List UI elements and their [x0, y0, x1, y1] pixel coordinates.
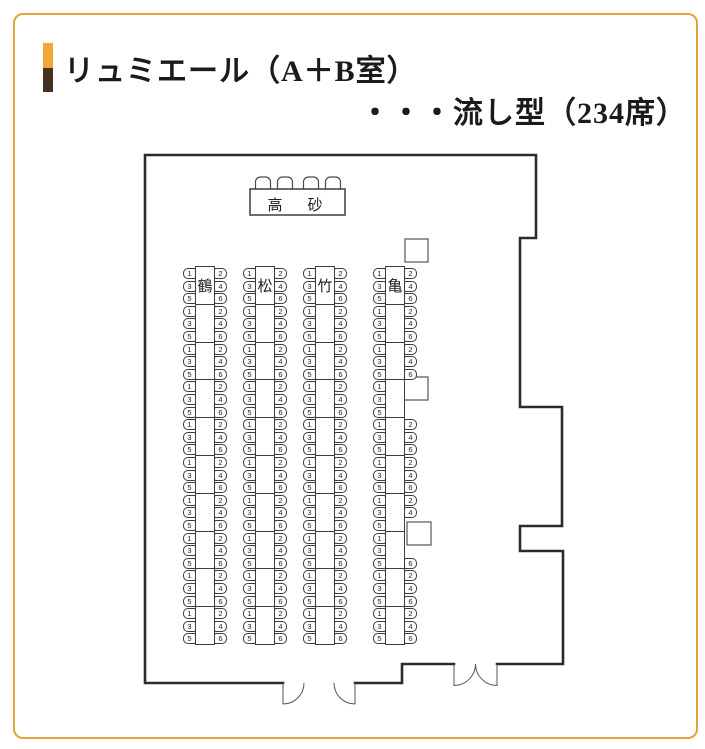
seat: 3: [183, 470, 196, 481]
table-segment: [315, 455, 335, 494]
seat: 5: [183, 407, 196, 418]
seat: 1: [303, 381, 316, 392]
seat: 5: [243, 407, 256, 418]
seat: 5: [183, 482, 196, 493]
seat: 4: [334, 281, 347, 292]
seat: 2: [274, 344, 287, 355]
seat: 2: [334, 457, 347, 468]
seat: 2: [404, 419, 417, 430]
seat: 6: [214, 633, 227, 644]
table-segment: [255, 568, 275, 607]
seat: 3: [373, 470, 386, 481]
seat: 3: [183, 318, 196, 329]
seat: 4: [404, 583, 417, 594]
table-segment: [385, 342, 405, 381]
table-segment: [315, 342, 335, 381]
table-segment: [255, 304, 275, 343]
seat: 3: [303, 583, 316, 594]
seat: 5: [373, 444, 386, 455]
table-segment: [255, 379, 275, 418]
seat: 1: [183, 570, 196, 581]
table-segment: [385, 606, 405, 645]
seat: 4: [404, 621, 417, 632]
seat: 5: [303, 331, 316, 342]
seat: 2: [274, 419, 287, 430]
seat: 6: [214, 293, 227, 304]
seat: 3: [303, 470, 316, 481]
seat: 3: [243, 470, 256, 481]
seat: 3: [373, 318, 386, 329]
seat: 6: [214, 407, 227, 418]
seat: 4: [214, 318, 227, 329]
seat: 6: [214, 558, 227, 569]
seat: 6: [404, 369, 417, 380]
seat: 4: [214, 281, 227, 292]
table-segment: [255, 531, 275, 570]
seat: 5: [373, 558, 386, 569]
seat: 3: [303, 432, 316, 443]
seat: 2: [274, 306, 287, 317]
table-label: 松: [255, 272, 275, 298]
seat: 3: [183, 432, 196, 443]
seat: 6: [334, 444, 347, 455]
seat: 4: [214, 545, 227, 556]
seat: 2: [334, 570, 347, 581]
seat: 5: [183, 369, 196, 380]
seat: 5: [183, 633, 196, 644]
seat: 2: [404, 306, 417, 317]
seat: 4: [334, 432, 347, 443]
seat: 6: [334, 558, 347, 569]
seat: 2: [274, 457, 287, 468]
seat: 1: [303, 306, 316, 317]
seat: 1: [183, 457, 196, 468]
table-segment: [385, 379, 405, 418]
seat: 6: [334, 369, 347, 380]
seat: 4: [334, 318, 347, 329]
seat: 3: [183, 507, 196, 518]
table-segment: [255, 493, 275, 532]
room-outline-svg: [0, 0, 705, 749]
seat: 4: [334, 470, 347, 481]
seat: 3: [243, 621, 256, 632]
door-right-right-leaf: [476, 664, 498, 686]
table-segment: [255, 342, 275, 381]
seat: 3: [303, 318, 316, 329]
table-segment: [195, 606, 215, 645]
seat: 5: [373, 407, 386, 418]
seat: 3: [243, 318, 256, 329]
pillar: [404, 377, 428, 400]
seat: 1: [243, 381, 256, 392]
seat: 6: [404, 444, 417, 455]
pillar: [407, 522, 431, 545]
seat: 4: [334, 356, 347, 367]
seat: 5: [303, 633, 316, 644]
door-right-left-leaf: [454, 664, 476, 686]
seat: 1: [243, 344, 256, 355]
seat: 2: [214, 457, 227, 468]
seat: 3: [303, 545, 316, 556]
table-segment: [195, 304, 215, 343]
seat: 3: [183, 356, 196, 367]
seat: 5: [373, 633, 386, 644]
table-segment: [255, 417, 275, 456]
seat: 2: [334, 533, 347, 544]
seat: 2: [334, 608, 347, 619]
pillar: [405, 239, 428, 262]
seat: 2: [404, 608, 417, 619]
seat: 1: [243, 570, 256, 581]
seat: 1: [183, 495, 196, 506]
seat: 6: [274, 331, 287, 342]
seat: 2: [404, 344, 417, 355]
seat: 2: [214, 533, 227, 544]
seat: 3: [303, 507, 316, 518]
table-segment: [385, 455, 405, 494]
seat: 2: [214, 570, 227, 581]
seat: 3: [183, 621, 196, 632]
seat: 3: [303, 356, 316, 367]
seat: 4: [214, 507, 227, 518]
seat: 6: [274, 407, 287, 418]
seat: 5: [243, 558, 256, 569]
seat: 2: [214, 608, 227, 619]
seat: 4: [274, 394, 287, 405]
seat: 3: [243, 545, 256, 556]
table-label: 亀: [385, 272, 405, 298]
seat: 6: [334, 482, 347, 493]
seat: 6: [404, 482, 417, 493]
seat: 6: [274, 369, 287, 380]
seat: 5: [303, 520, 316, 531]
seat: 4: [214, 394, 227, 405]
seat: 1: [303, 570, 316, 581]
door-center-right: [334, 683, 355, 704]
door-center-left: [283, 683, 304, 704]
seat: 6: [334, 596, 347, 607]
seat: 3: [373, 507, 386, 518]
seat: 1: [243, 495, 256, 506]
seat: 1: [373, 608, 386, 619]
seat: 4: [404, 281, 417, 292]
seat: 3: [243, 432, 256, 443]
seat: 1: [373, 457, 386, 468]
seat: 3: [373, 394, 386, 405]
seat: 2: [214, 495, 227, 506]
seat: 5: [373, 369, 386, 380]
seating-chart-page: リュミエール（A＋B室） ・・・流し型（234席） 高 砂 12345: [0, 0, 705, 749]
seat: 1: [243, 419, 256, 430]
seat: 4: [274, 621, 287, 632]
seat: 2: [274, 268, 287, 279]
seat: 5: [373, 331, 386, 342]
seat: 6: [274, 520, 287, 531]
seat: 3: [243, 583, 256, 594]
seat: 5: [183, 331, 196, 342]
seat: 2: [214, 306, 227, 317]
stage-label: 高 砂: [250, 194, 345, 215]
table-segment: [315, 304, 335, 343]
seat: 5: [243, 331, 256, 342]
seat: 6: [404, 596, 417, 607]
table-segment: [315, 531, 335, 570]
seat: 4: [274, 470, 287, 481]
seat: 2: [274, 495, 287, 506]
seat: 1: [373, 306, 386, 317]
seat: 4: [404, 356, 417, 367]
seat: 1: [373, 344, 386, 355]
seat: 2: [404, 457, 417, 468]
seat: 6: [214, 444, 227, 455]
seat: 6: [214, 482, 227, 493]
table-segment: [255, 606, 275, 645]
table-segment: [195, 493, 215, 532]
seat: 6: [274, 293, 287, 304]
table-segment: [195, 342, 215, 381]
seat: 6: [334, 407, 347, 418]
seat: 1: [303, 608, 316, 619]
seat: 4: [334, 621, 347, 632]
seat: 4: [274, 507, 287, 518]
seat: 4: [274, 318, 287, 329]
seat: 4: [274, 583, 287, 594]
seat: 6: [404, 633, 417, 644]
seat: 3: [373, 621, 386, 632]
seat: 5: [183, 444, 196, 455]
seat: 5: [183, 520, 196, 531]
table-segment: [195, 568, 215, 607]
seat: 3: [183, 583, 196, 594]
seat: 4: [274, 545, 287, 556]
table-segment: [315, 417, 335, 456]
seat: 4: [214, 356, 227, 367]
seat: 1: [243, 306, 256, 317]
table-segment: [255, 455, 275, 494]
seat: 3: [243, 394, 256, 405]
seat: 5: [303, 482, 316, 493]
seat: 5: [243, 520, 256, 531]
seat: 5: [303, 558, 316, 569]
seat: 1: [183, 533, 196, 544]
seat: 1: [243, 457, 256, 468]
seat: 6: [404, 293, 417, 304]
seat: 1: [303, 495, 316, 506]
stage-chairs: [256, 177, 341, 190]
seat: 6: [214, 520, 227, 531]
seat: 2: [404, 268, 417, 279]
seat: 2: [274, 381, 287, 392]
seat: 2: [404, 570, 417, 581]
seat: 1: [373, 419, 386, 430]
table-segment: [385, 304, 405, 343]
seat: 5: [243, 633, 256, 644]
table-segment: [315, 568, 335, 607]
seat: 4: [274, 281, 287, 292]
table-segment: [315, 379, 335, 418]
seat: 4: [214, 621, 227, 632]
seat: 3: [243, 356, 256, 367]
seat: 4: [214, 583, 227, 594]
seat: 1: [183, 306, 196, 317]
table-segment: [195, 379, 215, 418]
table-segment: [315, 493, 335, 532]
seat: 4: [214, 432, 227, 443]
seat: 1: [183, 381, 196, 392]
seat: 4: [404, 318, 417, 329]
seat: 4: [274, 432, 287, 443]
seat: 2: [334, 495, 347, 506]
seat: 6: [214, 596, 227, 607]
seat: 3: [183, 394, 196, 405]
seat: 3: [373, 356, 386, 367]
seat: 1: [373, 495, 386, 506]
seat: 4: [334, 394, 347, 405]
seat: 6: [274, 482, 287, 493]
seat: 6: [274, 633, 287, 644]
seat: 6: [334, 293, 347, 304]
seat: 1: [243, 533, 256, 544]
table-label: 鶴: [195, 272, 215, 298]
seat: 5: [243, 596, 256, 607]
seat: 2: [334, 381, 347, 392]
table-segment: [385, 493, 405, 532]
seat: 4: [404, 432, 417, 443]
seat: 5: [183, 558, 196, 569]
seat: 3: [373, 432, 386, 443]
table-segment: [315, 606, 335, 645]
table-segment: [385, 531, 405, 570]
seat: 6: [274, 596, 287, 607]
seat: 5: [303, 596, 316, 607]
seat: 5: [373, 482, 386, 493]
table-segment: [195, 417, 215, 456]
seat: 6: [334, 520, 347, 531]
seat: 1: [303, 344, 316, 355]
seat: 4: [334, 583, 347, 594]
seat: 5: [243, 369, 256, 380]
seat: 6: [404, 331, 417, 342]
seat: 1: [303, 457, 316, 468]
seat: 2: [334, 344, 347, 355]
table-segment: [385, 417, 405, 456]
seat: 3: [373, 583, 386, 594]
seat: 1: [373, 533, 386, 544]
seat: 3: [303, 394, 316, 405]
seat: 5: [373, 520, 386, 531]
seat: 6: [214, 369, 227, 380]
seat: 2: [334, 419, 347, 430]
seat: 5: [373, 596, 386, 607]
seat: 6: [274, 444, 287, 455]
seat: 1: [303, 533, 316, 544]
table-label: 竹: [315, 272, 335, 298]
seat: 3: [373, 545, 386, 556]
seat: 2: [334, 306, 347, 317]
seat: 6: [334, 331, 347, 342]
seat: 2: [404, 495, 417, 506]
seat: 4: [334, 545, 347, 556]
seat: 1: [373, 381, 386, 392]
seat: 2: [334, 268, 347, 279]
seat: 1: [183, 608, 196, 619]
seat: 2: [214, 419, 227, 430]
seat: 4: [404, 507, 417, 518]
seat: 2: [214, 344, 227, 355]
seat: 1: [373, 570, 386, 581]
seat: 5: [303, 444, 316, 455]
table-segment: [195, 531, 215, 570]
seat: 3: [303, 621, 316, 632]
seat: 2: [274, 533, 287, 544]
seat: 3: [183, 545, 196, 556]
seat: 4: [274, 356, 287, 367]
seat: 5: [303, 407, 316, 418]
seat: 5: [303, 369, 316, 380]
table-segment: [385, 568, 405, 607]
seat: 4: [404, 470, 417, 481]
seat: 6: [214, 331, 227, 342]
seat: 6: [404, 558, 417, 569]
seat: 1: [243, 608, 256, 619]
seat: 1: [183, 419, 196, 430]
seat: 1: [303, 419, 316, 430]
seat: 2: [214, 381, 227, 392]
seat: 4: [334, 507, 347, 518]
seat: 1: [183, 344, 196, 355]
seat: 4: [214, 470, 227, 481]
seat: 2: [274, 570, 287, 581]
seat: 6: [334, 633, 347, 644]
seat: 2: [274, 608, 287, 619]
seat: 6: [274, 558, 287, 569]
floorplan: 高 砂 123456123456123456123456123456123456…: [0, 0, 705, 749]
seat: 2: [214, 268, 227, 279]
seat: 5: [243, 482, 256, 493]
seat: 5: [183, 596, 196, 607]
seat: 5: [243, 444, 256, 455]
seat: 3: [243, 507, 256, 518]
table-segment: [195, 455, 215, 494]
